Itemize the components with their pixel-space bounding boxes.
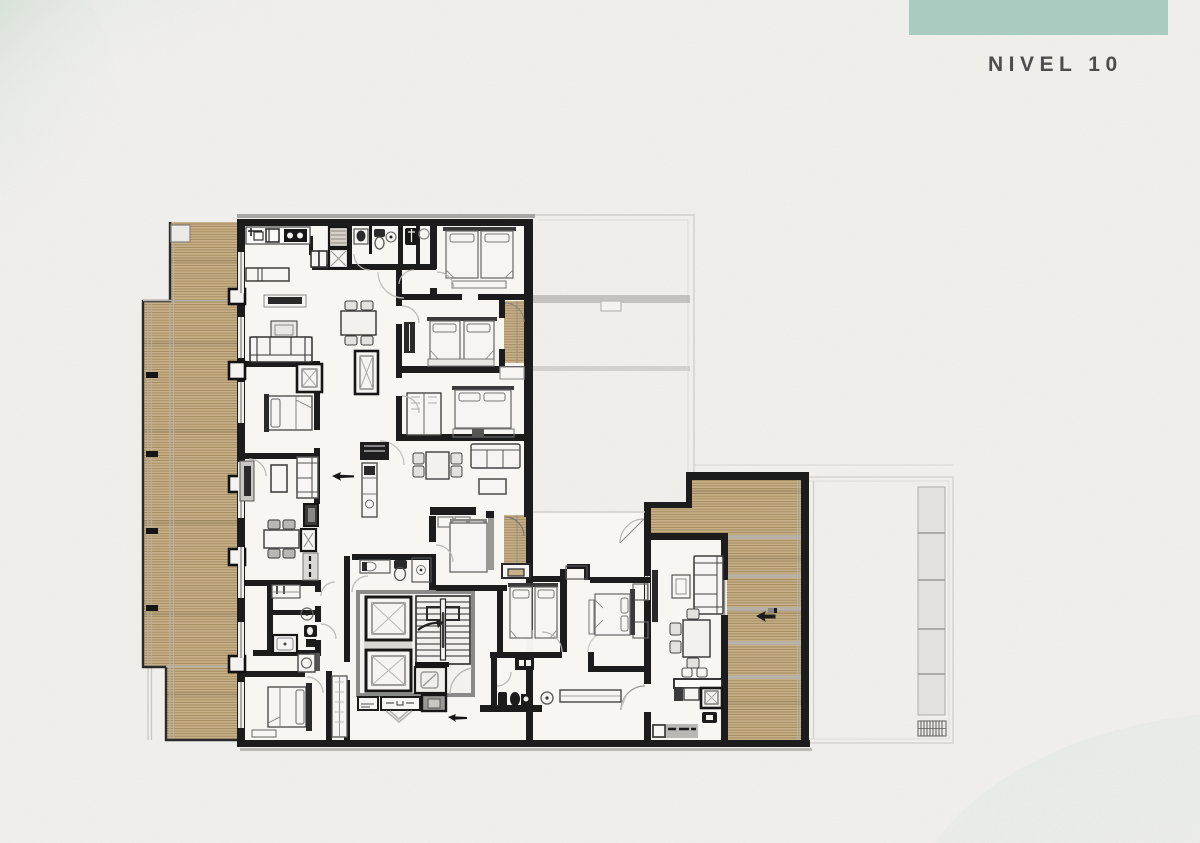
svg-text:NIVEL 10: NIVEL 10 [988,53,1123,76]
